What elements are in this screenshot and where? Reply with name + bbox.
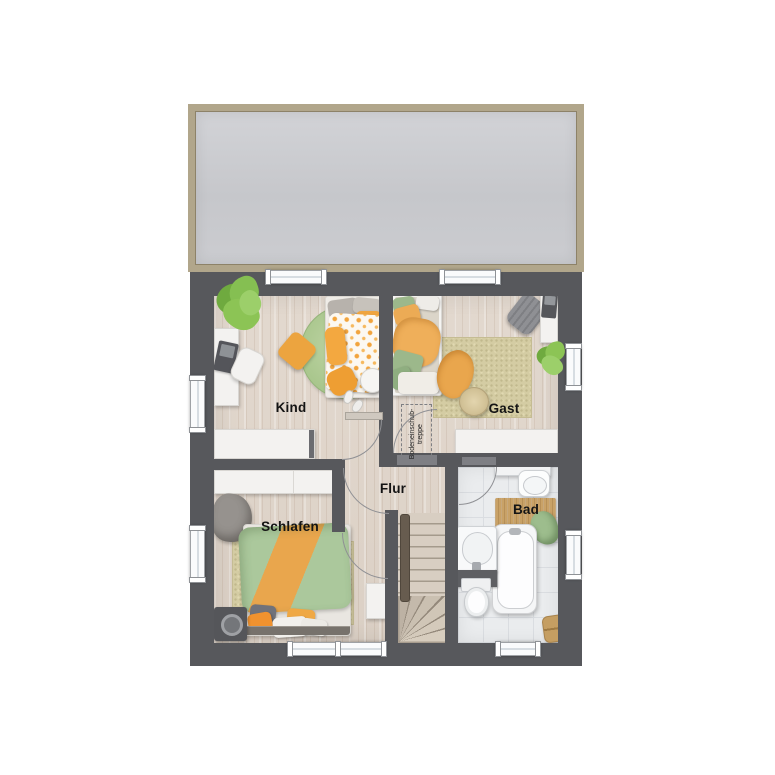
kind-wardrobe-side (309, 430, 314, 458)
bad-sink (456, 526, 497, 572)
gast-sideboard (455, 429, 558, 456)
window-cap (189, 525, 206, 531)
window-cap (439, 269, 445, 285)
window-cap (189, 427, 206, 433)
schlafen-bed (243, 524, 351, 636)
bad-toilet-bowl (464, 587, 489, 617)
window-cap (565, 574, 582, 580)
schlafen-wardrobe (214, 470, 333, 494)
window-cap (381, 641, 387, 657)
window-cap (535, 641, 541, 657)
floor-plan: Bodeneinschub- treppe Kind Gast Flur Sch… (0, 0, 775, 775)
window-cap (335, 641, 341, 657)
window-cap (265, 269, 271, 285)
window-glass (271, 276, 321, 278)
bad-door-leaf (462, 457, 496, 465)
staircase-handrail (400, 514, 410, 602)
room-label-kind: Kind (261, 400, 321, 415)
bad-bathtub-faucet (509, 528, 521, 535)
window-glass (197, 531, 199, 577)
window-kind-top (266, 270, 326, 284)
bad-sink-bowl (462, 532, 493, 565)
gast-laptop-screen (544, 296, 556, 306)
schlafen-wardrobe-divider (293, 471, 294, 493)
window-cap (565, 385, 582, 391)
gast-bed (391, 292, 442, 396)
window-cap (189, 375, 206, 381)
window-gast-top (440, 270, 500, 284)
window-schlafen-bottom (288, 642, 386, 656)
outer-wall-right (558, 272, 582, 666)
gast-bed-sheet (398, 372, 439, 394)
bad-bathtub-basin (497, 531, 534, 609)
room-label-schlafen: Schlafen (250, 519, 330, 534)
kind-wardrobe (214, 429, 315, 459)
schlafen-speaker-ring (221, 614, 243, 636)
window-cap (495, 269, 501, 285)
schlafen-speaker (214, 607, 247, 641)
window-bad-right (566, 531, 581, 579)
staircase-winder (398, 596, 445, 643)
kind-door-leaf (345, 412, 383, 420)
gast-plant (536, 342, 566, 376)
window-cap (287, 641, 293, 657)
window-cap (565, 530, 582, 536)
room-label-gast: Gast (474, 401, 534, 416)
window-cap (495, 641, 501, 657)
window-cap (189, 577, 206, 583)
window-gast-right (566, 344, 581, 390)
bad-bathtub (492, 524, 537, 614)
wall-kind-schlafen (214, 459, 345, 470)
attic-hatch-label: Bodeneinschub- treppe (409, 404, 425, 464)
window-cap (565, 343, 582, 349)
schlafen-bed-footboard (244, 626, 350, 635)
bad-washbasin-bowl (523, 476, 547, 495)
window-cap (321, 269, 327, 285)
schlafen-nightstand (366, 583, 387, 619)
room-label-flur: Flur (363, 481, 423, 496)
window-glass (573, 349, 575, 385)
window-glass (445, 276, 495, 278)
kind-plant (213, 277, 263, 333)
gast-laptop (541, 293, 558, 318)
window-kind-left (190, 376, 205, 432)
window-schlafen-left (190, 526, 205, 582)
kind-bed-blanket-fold (324, 326, 348, 366)
schlafen-bed-duvet (238, 522, 352, 614)
kind-laptop-screen (219, 344, 235, 359)
outer-wall-left (190, 272, 214, 666)
wall-stairs-bad (445, 455, 458, 643)
window-glass (197, 381, 199, 427)
roof-slab (188, 104, 584, 272)
wall-kind-gast (379, 296, 393, 463)
room-label-bad: Bad (496, 502, 556, 517)
bad-washbasin (518, 470, 550, 497)
window-glass (573, 536, 575, 574)
window-glass (501, 648, 535, 650)
window-bad-bottom (496, 642, 540, 656)
